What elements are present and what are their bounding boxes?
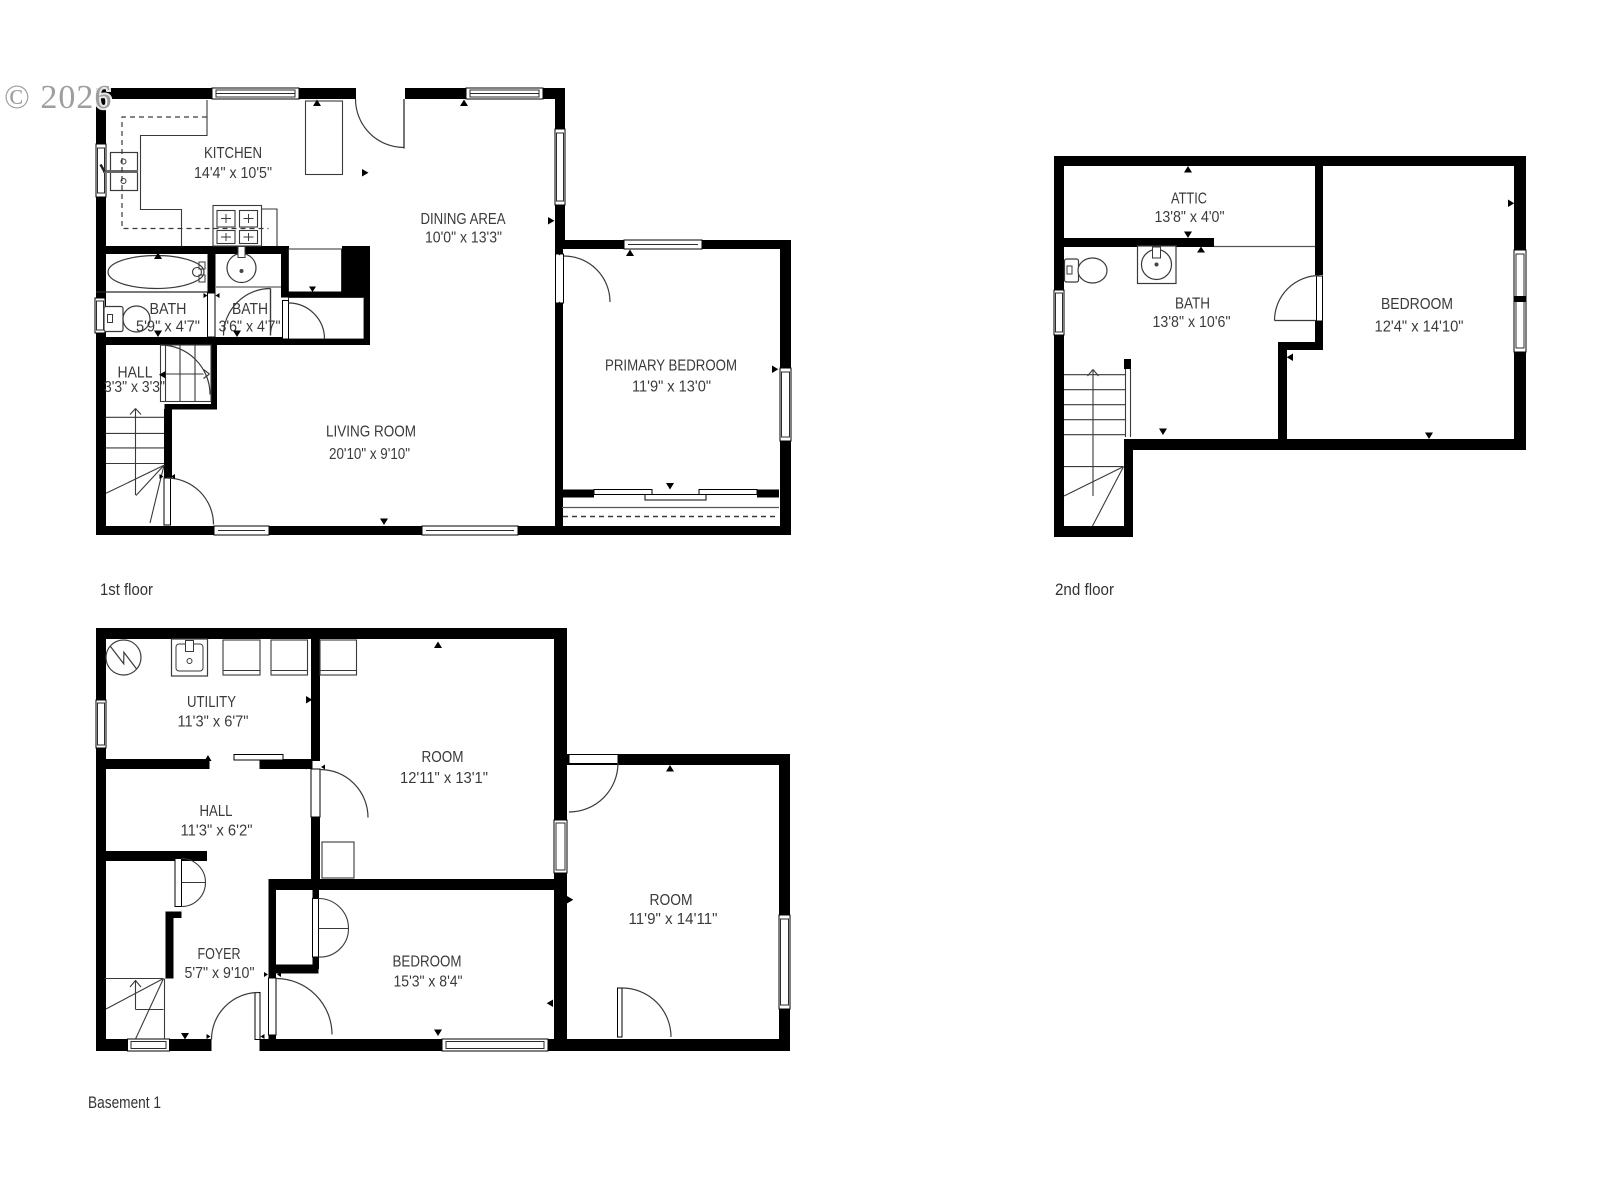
svg-text:PRIMARY BEDROOM: PRIMARY BEDROOM	[605, 358, 737, 375]
svg-text:BEDROOM: BEDROOM	[393, 954, 462, 971]
svg-text:15'3" x 8'4": 15'3" x 8'4"	[394, 974, 463, 991]
svg-text:© 2026: © 2026	[4, 79, 112, 116]
svg-text:3'6" x 4'7": 3'6" x 4'7"	[219, 319, 281, 336]
svg-text:1st floor: 1st floor	[100, 581, 153, 599]
svg-text:11'3" x 6'7": 11'3" x 6'7"	[178, 714, 249, 731]
svg-text:14'4" x 10'5": 14'4" x 10'5"	[194, 165, 272, 182]
svg-text:5'9" x 4'7": 5'9" x 4'7"	[136, 319, 200, 336]
svg-text:5'7" x 9'10": 5'7" x 9'10"	[185, 965, 255, 982]
svg-text:13'8" x 10'6": 13'8" x 10'6"	[1153, 314, 1231, 331]
svg-text:ATTIC: ATTIC	[1171, 191, 1207, 208]
svg-text:BATH: BATH	[150, 301, 187, 318]
svg-text:11'9" x 13'0": 11'9" x 13'0"	[632, 379, 711, 396]
svg-text:11'9" x 14'11": 11'9" x 14'11"	[629, 911, 718, 928]
svg-text:KITCHEN: KITCHEN	[204, 145, 262, 162]
svg-text:2nd floor: 2nd floor	[1055, 581, 1114, 599]
svg-text:ROOM: ROOM	[422, 749, 464, 766]
svg-text:10'0" x 13'3": 10'0" x 13'3"	[425, 230, 502, 247]
svg-text:ROOM: ROOM	[650, 892, 693, 909]
svg-text:12'11" x 13'1": 12'11" x 13'1"	[400, 770, 488, 787]
svg-text:BATH: BATH	[1175, 296, 1210, 313]
svg-text:UTILITY: UTILITY	[187, 694, 236, 711]
svg-text:BEDROOM: BEDROOM	[1381, 296, 1453, 313]
svg-text:Basement 1: Basement 1	[88, 1094, 161, 1112]
svg-text:LIVING ROOM: LIVING ROOM	[326, 424, 416, 441]
svg-text:11'3" x 6'2": 11'3" x 6'2"	[181, 823, 253, 840]
svg-text:3'3" x 3'3": 3'3" x 3'3"	[104, 379, 165, 396]
svg-text:DINING AREA: DINING AREA	[421, 211, 507, 228]
svg-text:13'8" x 4'0": 13'8" x 4'0"	[1155, 209, 1225, 226]
svg-text:12'4" x 14'10": 12'4" x 14'10"	[1375, 319, 1464, 336]
svg-text:HALL: HALL	[200, 803, 233, 820]
svg-text:FOYER: FOYER	[198, 946, 241, 963]
svg-text:20'10" x 9'10": 20'10" x 9'10"	[329, 446, 410, 463]
svg-text:BATH: BATH	[232, 301, 268, 318]
